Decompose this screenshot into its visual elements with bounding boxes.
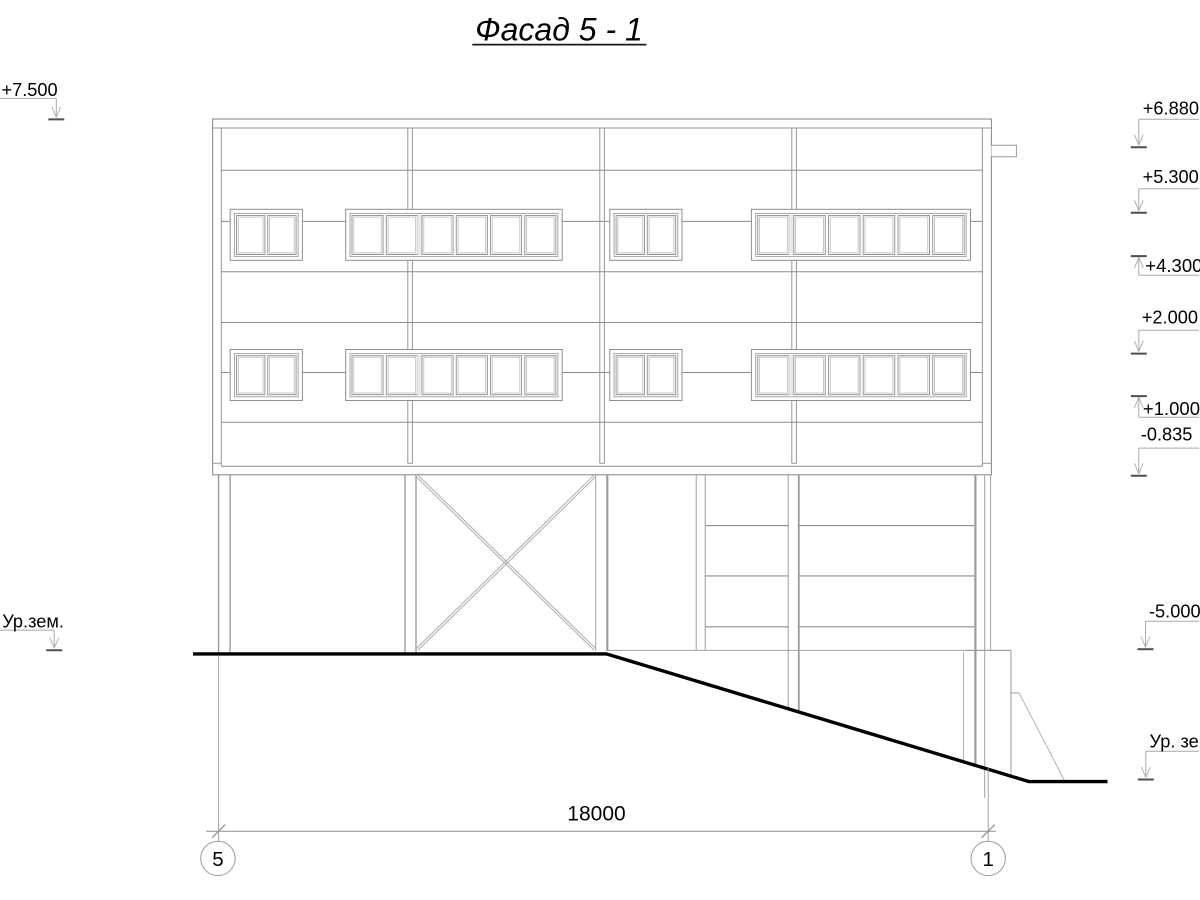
svg-text:18000: 18000	[567, 802, 625, 825]
svg-text:Фасад 5 - 1: Фасад 5 - 1	[475, 12, 643, 48]
svg-text:5: 5	[212, 848, 223, 871]
svg-text:+1.000: +1.000	[1143, 398, 1200, 419]
svg-text:-5.000: -5.000	[1149, 601, 1200, 621]
svg-text:+6.880: +6.880	[1143, 99, 1199, 119]
svg-text:1: 1	[982, 848, 993, 871]
svg-text:-0.835: -0.835	[1141, 425, 1193, 445]
svg-text:+2.000: +2.000	[1142, 308, 1198, 328]
svg-text:Ур.зем.: Ур.зем.	[2, 612, 64, 632]
svg-text:+4.300: +4.300	[1145, 255, 1200, 276]
svg-text:Ур. зем.: Ур. зем.	[1150, 732, 1200, 752]
svg-text:+7.500: +7.500	[2, 80, 58, 100]
svg-text:+5.300: +5.300	[1143, 167, 1199, 187]
